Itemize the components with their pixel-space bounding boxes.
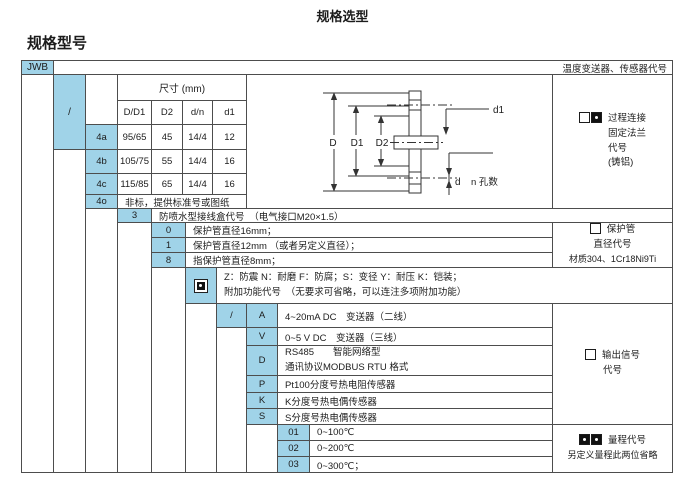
flange-code-4o: 4o (85, 194, 118, 209)
addon-marker-cell (185, 267, 217, 304)
range-code-03: 03 (277, 456, 310, 473)
position-box-icon (590, 223, 601, 234)
empty-flange-code-bottom (85, 208, 118, 473)
range-text-01: 0~100℃ (309, 424, 553, 441)
legend-range: 量程代号 另定义量程此两位省略 (552, 424, 673, 473)
addon-line2: 附加功能代号 （无要求可省略，可以连注多项附加功能） (224, 286, 466, 300)
range-text-02: 0~200℃ (309, 440, 553, 457)
range-code-label: 量程代号 (608, 435, 646, 446)
output-text-D: RS485 智能网络型 通讯协议MODBUS RTU 格式 (277, 345, 553, 376)
addon-line1: Z：防震 N：耐磨 F：防腐；S：变径 Y：耐压 K：铠装； (224, 271, 462, 285)
output-text-S: S分度号热电偶传感器 (277, 408, 553, 425)
output-text-V: 0~5 V DC 变送器（三线） (277, 327, 553, 346)
empty-flange-code-top (85, 74, 118, 125)
output-text-D-line1: RS485 智能网络型 (285, 346, 381, 360)
legend-protect-tube: 保护管 直径代号 材质304、1Cr18Ni9Ti (552, 222, 673, 268)
position-marker-icon (579, 434, 590, 445)
tube-text-1: 保护管直径12mm （或者另定义直径）； (185, 237, 553, 253)
empty-col-addon (185, 303, 217, 473)
range-code-01: 01 (277, 424, 310, 441)
dim-label-d: d (455, 177, 461, 188)
range-code-02: 02 (277, 440, 310, 457)
flange-code-4c: 4c (85, 173, 118, 195)
dim-4b-dd1: 105/75 (117, 149, 152, 174)
flange-nonstandard-note: 非标，提供标准号或图纸 (117, 194, 247, 209)
dim-4c-dd1: 115/85 (117, 173, 152, 195)
dim-label-n-holes: n 孔数 (471, 176, 498, 188)
dim-label-d1: d1 (493, 105, 505, 116)
dim-4a-dd1: 95/65 (117, 124, 152, 150)
dim-label-D2: D2 (376, 138, 389, 149)
position-marker-icon (194, 279, 208, 293)
output-code-D: D (246, 345, 278, 376)
position-marker-icon (591, 434, 602, 445)
output-code-V: V (246, 327, 278, 346)
position-box-icon (579, 112, 590, 123)
fixed-flange-label: 固定法兰 (579, 127, 646, 142)
dim-label-D1: D1 (351, 138, 364, 149)
empty-col-2 (53, 149, 86, 473)
legend-output-signal: 输出信号 代号 (552, 303, 673, 425)
dim-4c-d2: 65 (151, 173, 183, 195)
junction-box-text: 防喷水型接线盒代号 （电气接口M20×1.5） (151, 208, 673, 223)
tube-code-1: 1 (151, 237, 186, 253)
position-box-icon (585, 349, 596, 360)
dim-label-D: D (329, 138, 336, 149)
diameter-code-label: 直径代号 (593, 238, 631, 253)
header-right-label: 温度变送器、传感器代号 (53, 60, 673, 75)
output-slash-cell: / (216, 303, 247, 328)
model-code-cell: JWB (21, 60, 54, 75)
page-title: 规格选型 (0, 6, 685, 25)
flange-code-4b: 4b (85, 149, 118, 174)
cast-aluminum-label: (铸铝) (579, 156, 646, 171)
range-note-label: 另定义量程此两位省略 (567, 449, 657, 463)
empty-col-jbox (117, 222, 152, 473)
flange-drawing: D D1 D2 d1 d n 孔数 (247, 75, 552, 208)
empty-col-tube (151, 267, 186, 473)
flange-code-4a: 4a (85, 124, 118, 150)
output-text-D-line2: 通讯协议MODBUS RTU 格式 (285, 361, 408, 375)
dim-4b-d1: 16 (212, 149, 247, 174)
output-code-P: P (246, 375, 278, 393)
model-selection-table: JWB 温度变送器、传感器代号 / 4a 4b 4c 4o 尺寸 (mm) D/… (21, 60, 673, 473)
dim-col-header-dd1: D/D1 (117, 100, 152, 125)
tube-text-8: 指保护管直径8mm； (185, 252, 553, 268)
range-text-03: 0~300℃； (309, 456, 553, 473)
flange-slash-cell: / (53, 74, 86, 150)
tube-code-0: 0 (151, 222, 186, 238)
dim-4b-dn: 14/4 (182, 149, 213, 174)
dim-col-header-d2: D2 (151, 100, 183, 125)
dim-col-header-d1: d1 (212, 100, 247, 125)
tube-text-0: 保护管直径16mm； (185, 222, 553, 238)
empty-col-1 (21, 74, 54, 473)
addon-text-cell: Z：防震 N：耐磨 F：防腐；S：变径 Y：耐压 K：铠装； 附加功能代号 （无… (216, 267, 673, 304)
output-text-A: 4~20mA DC 变送器（二线） (277, 303, 553, 328)
empty-col-output-slash (216, 327, 247, 473)
dim-4a-dn: 14/4 (182, 124, 213, 150)
output-code-S: S (246, 408, 278, 425)
dim-4a-d2: 45 (151, 124, 183, 150)
output-text-P: Pt100分度号热电阻传感器 (277, 375, 553, 393)
flange-drawing-cell: D D1 D2 d1 d n 孔数 (246, 74, 553, 209)
protect-tube-label: 保护管 (607, 224, 636, 235)
legend-process-connection: 过程连接 固定法兰 代号 (铸铝) (552, 74, 673, 209)
tube-code-8: 8 (151, 252, 186, 268)
output-code-A: A (246, 303, 278, 328)
junction-box-code: 3 (117, 208, 152, 223)
material-label: 材质304、1Cr18Ni9Ti (569, 253, 656, 267)
process-connection-label: 过程连接 (608, 113, 646, 124)
dim-4c-dn: 14/4 (182, 173, 213, 195)
dim-4c-d1: 16 (212, 173, 247, 195)
output-code-K: K (246, 392, 278, 409)
output-signal-label: 输出信号 (602, 350, 640, 361)
code-label: 代号 (579, 142, 646, 157)
dim-table-title: 尺寸 (mm) (117, 74, 247, 101)
dim-4a-d1: 12 (212, 124, 247, 150)
dim-col-header-dn: d/n (182, 100, 213, 125)
section-heading: 规格型号 (27, 32, 87, 53)
position-marker-icon (591, 112, 602, 123)
dim-4b-d2: 55 (151, 149, 183, 174)
output-text-K: K分度号热电偶传感器 (277, 392, 553, 409)
empty-col-output-code (246, 424, 278, 473)
output-code-label: 代号 (603, 364, 622, 379)
